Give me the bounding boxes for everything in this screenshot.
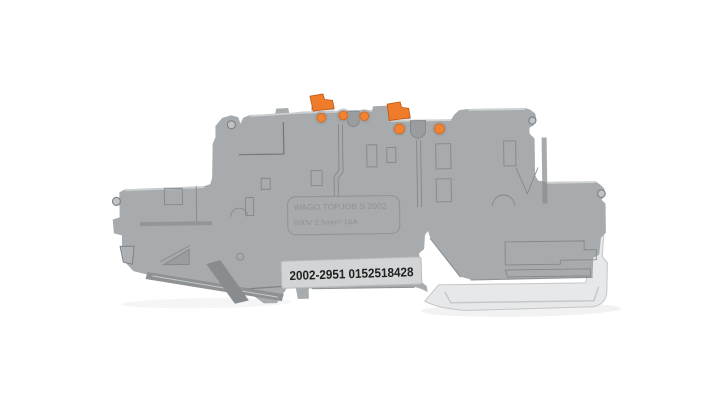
wire-notch xyxy=(410,121,425,139)
mounting-hole xyxy=(529,117,536,124)
mounting-hole xyxy=(112,197,120,205)
test-point xyxy=(434,124,444,134)
test-point xyxy=(360,112,369,121)
terminal-block-photo: WAGO TOPJOB S 2002 600V 2,5mm² 16A 2002-… xyxy=(0,0,720,407)
brand-marking-text: WAGO TOPJOB S 2002 xyxy=(293,202,387,212)
rating-marking-text: 600V 2,5mm² 16A xyxy=(294,219,359,227)
product-photo: WAGO TOPJOB S 2002 600V 2,5mm² 16A 2002-… xyxy=(0,0,720,407)
push-lever-right xyxy=(387,102,410,121)
test-point xyxy=(339,111,348,120)
test-point xyxy=(394,124,404,134)
push-lever-left xyxy=(310,94,334,111)
test-point xyxy=(317,113,326,122)
mounting-hole xyxy=(598,190,606,198)
order-number-label: 2002-2951 0152518428 xyxy=(281,257,422,288)
mounting-hole xyxy=(227,121,235,129)
